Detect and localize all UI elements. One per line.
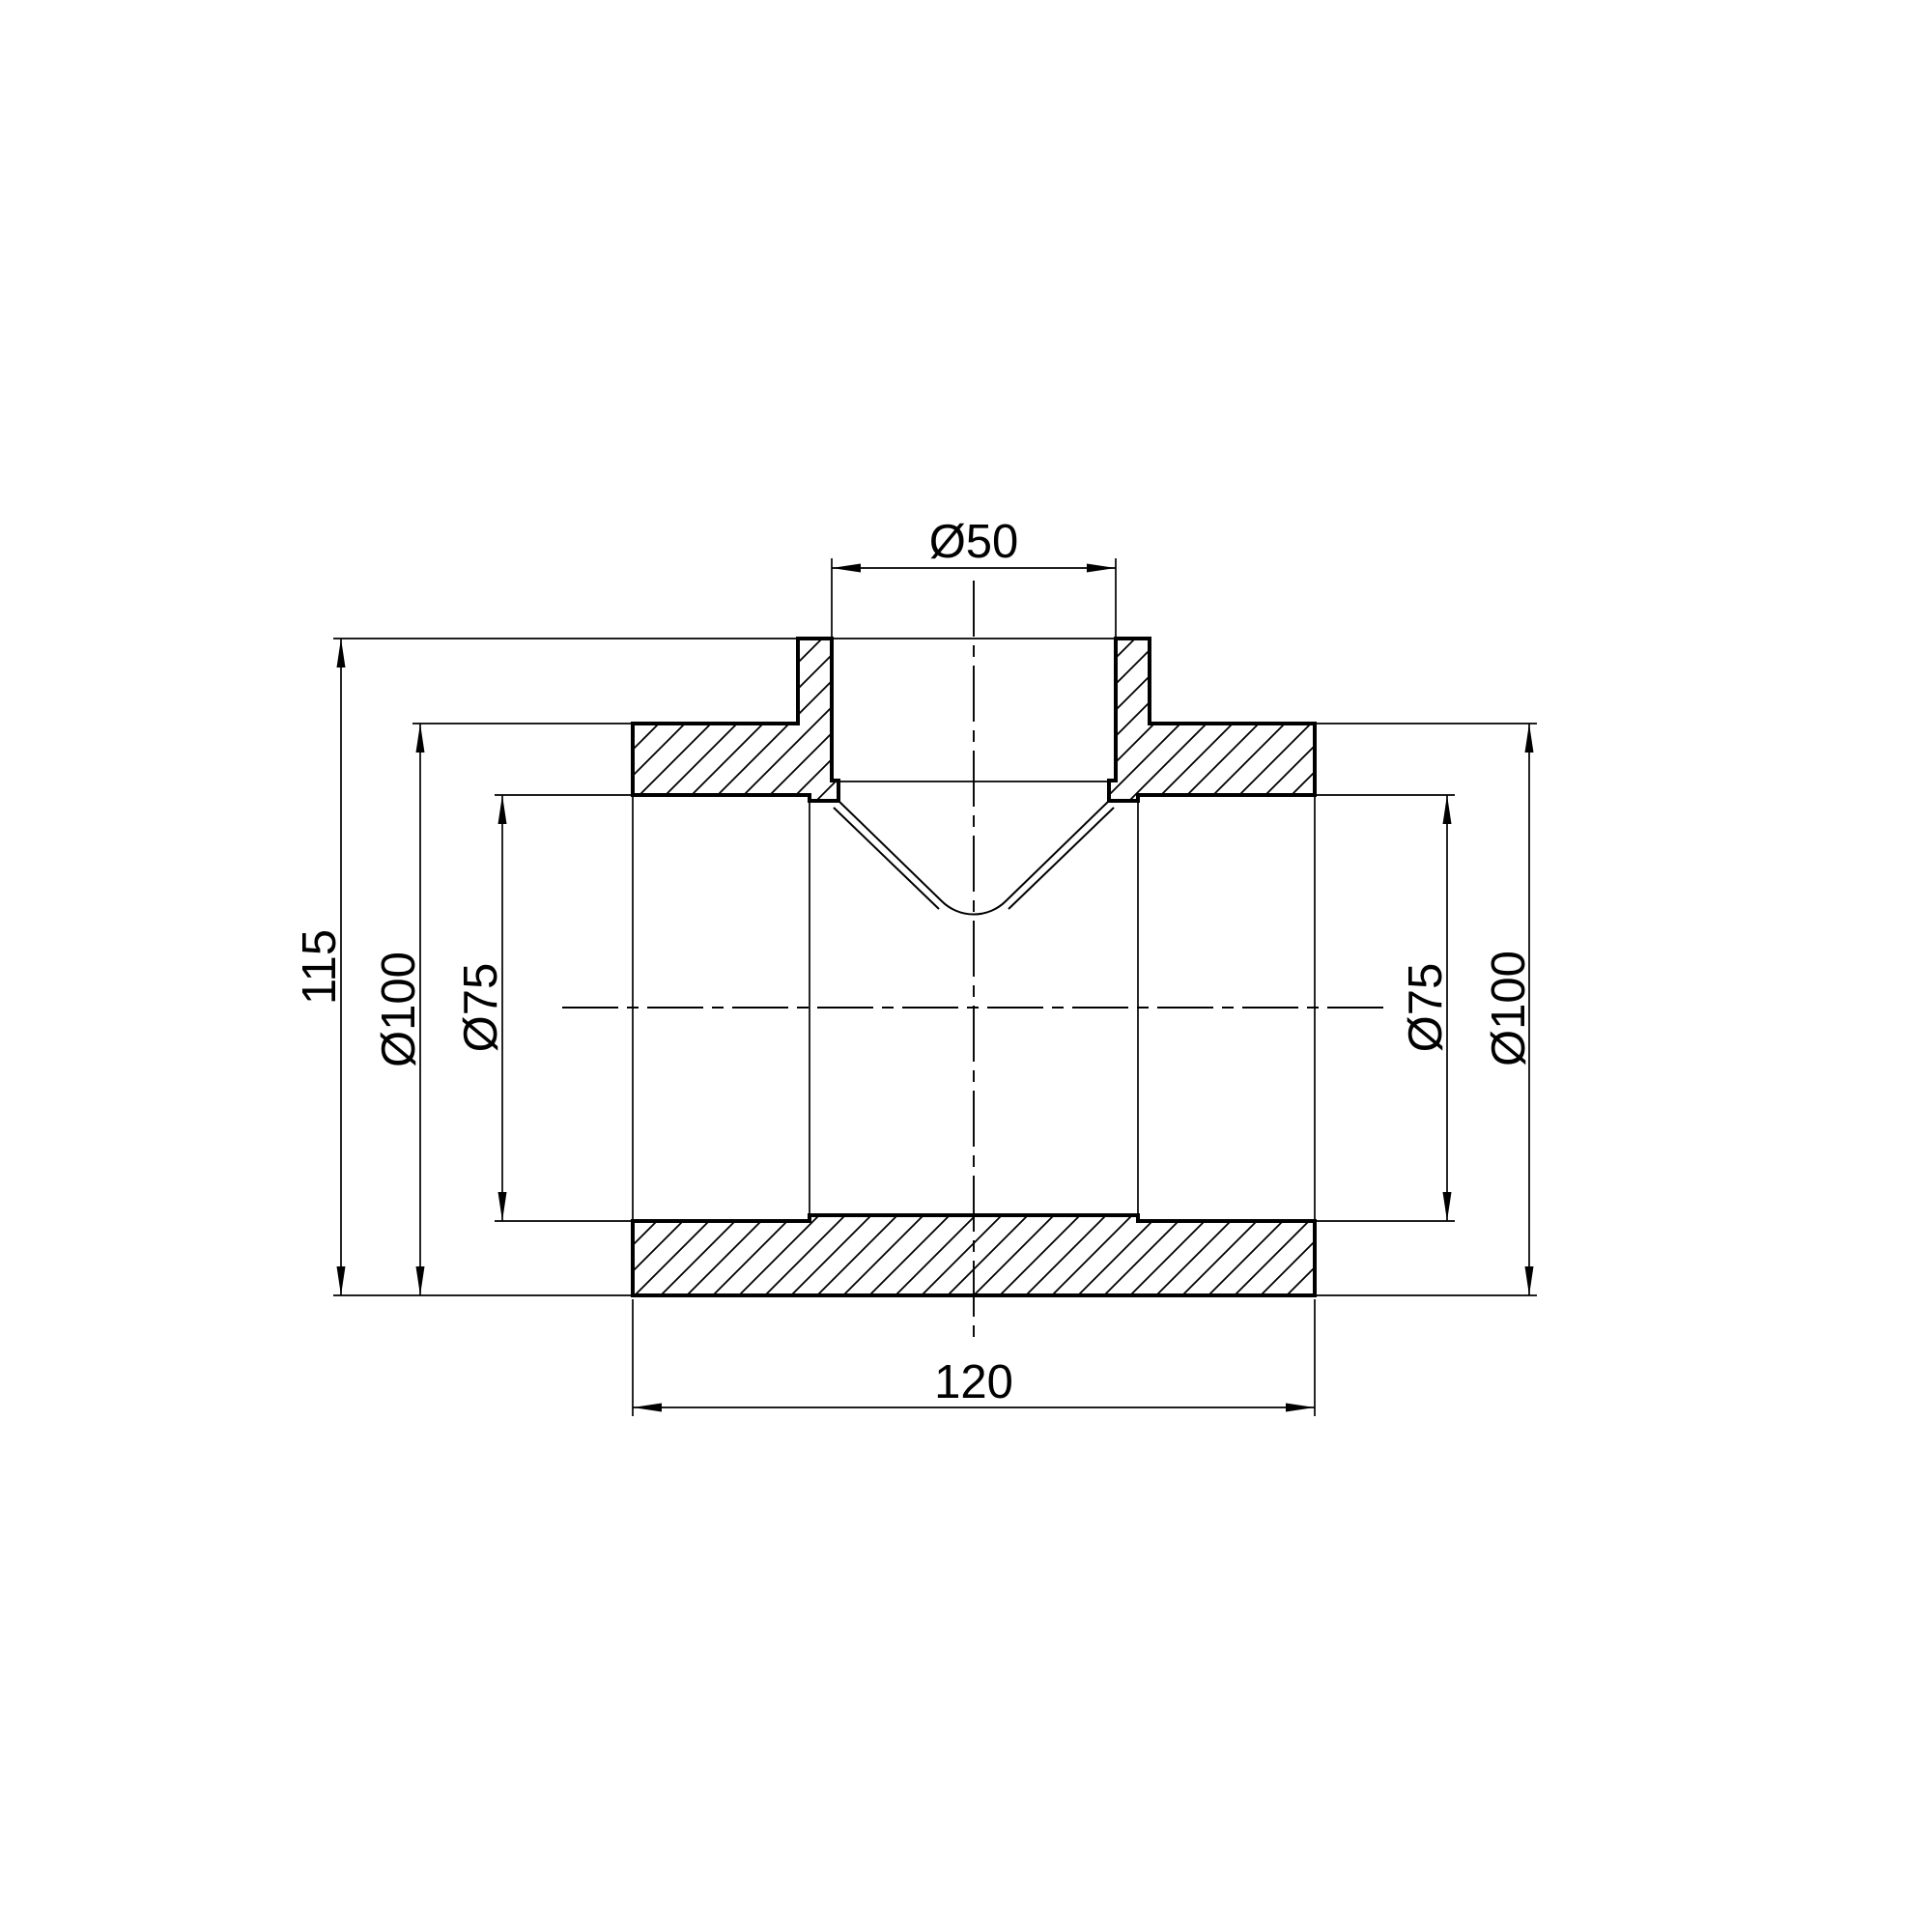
dimension-label-overall-length: 120 — [934, 1356, 1013, 1408]
tee-fitting-section-drawing: Ø50 115 Ø100 Ø75 Ø75 — [0, 0, 1932, 1932]
dimension-label-branch-bore: Ø50 — [929, 516, 1019, 568]
dimension-label-outer-right: Ø100 — [1483, 951, 1535, 1066]
dimension-label-outer-left: Ø100 — [373, 952, 425, 1067]
sheet-background — [0, 0, 1932, 1932]
dimension-label-overall-height: 115 — [294, 929, 346, 1005]
dimension-label-socket-left: Ø75 — [455, 963, 507, 1053]
dimension-label-socket-right: Ø75 — [1400, 963, 1452, 1053]
drawing-sheet: Ø50 115 Ø100 Ø75 Ø75 — [0, 0, 1932, 1932]
